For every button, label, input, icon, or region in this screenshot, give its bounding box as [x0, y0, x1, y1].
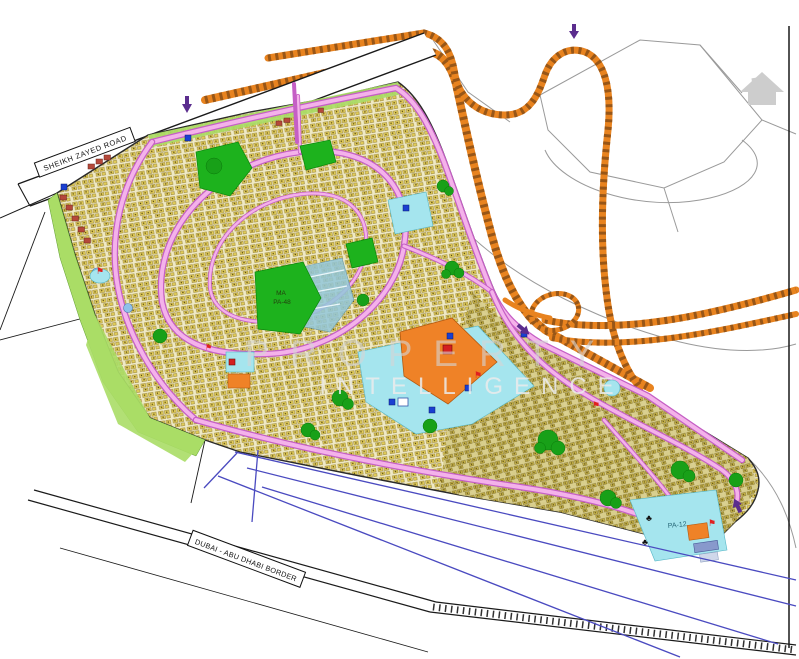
flag-marker-icon: ⚑ [592, 400, 600, 410]
tree-icon: ♣ [646, 513, 652, 523]
arrow-marker-icon [569, 24, 579, 39]
arrow-marker-icon [182, 96, 192, 113]
mosque-icon [185, 135, 191, 141]
facility-icon [229, 359, 235, 365]
border-label: DUBAI - ABU DHABI BORDER [194, 537, 298, 583]
watermark-line2: INTELLIGENCE [319, 373, 624, 400]
house-icon [740, 72, 784, 105]
central-park-label-line2: PA-48 [273, 299, 291, 306]
mosque-icon [61, 184, 67, 190]
mosque-icon [403, 205, 409, 211]
flag-marker-icon: ⚑ [96, 266, 104, 276]
central-park-label-line1: MA [276, 290, 286, 297]
watermark-line1: PROPERTY [245, 333, 616, 374]
flag-marker-icon: ⚑ [205, 343, 212, 352]
site-plan-drawing: SHEIKH ZAYED ROAD [0, 0, 799, 659]
mosque-icon [429, 407, 435, 413]
flag-marker-icon: ⚑ [708, 518, 716, 528]
map-canvas: SHEIKH ZAYED ROAD [0, 0, 799, 659]
development-area [48, 82, 759, 552]
